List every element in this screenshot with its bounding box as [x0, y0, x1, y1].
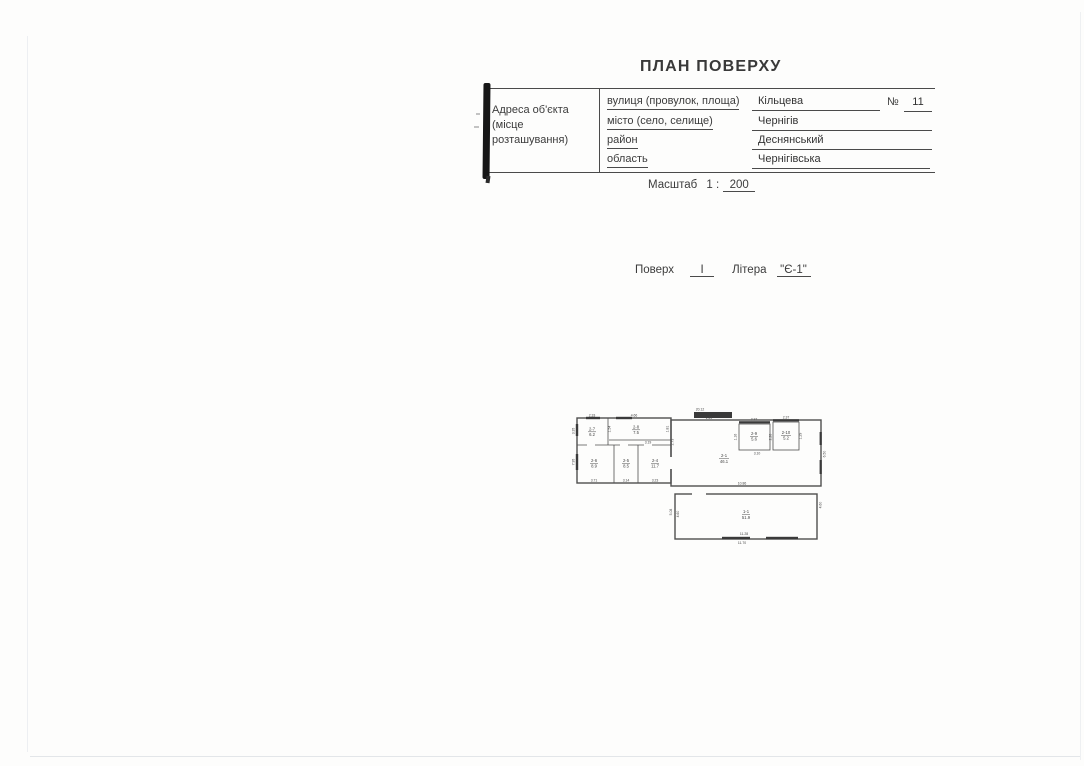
dim-label: 3.19 [645, 441, 652, 445]
window-mark [766, 537, 798, 539]
room-area: 8.9 [591, 464, 597, 469]
room-number: 2-9 [751, 431, 758, 436]
dimension-labels: 2.33 3.35 4.66 1.54 1.81 3.19 7.95 3.71 … [572, 408, 827, 546]
floor-value: I [690, 264, 714, 277]
window-mark [576, 424, 578, 436]
dim-label: 1.16 [734, 434, 738, 441]
chimney-mark [694, 412, 732, 418]
house-number-value: 11 [904, 96, 932, 112]
scale-ratio-value: 200 [723, 179, 755, 192]
dim-label: 5.08 [669, 509, 673, 516]
page-edge-bottom [30, 756, 1080, 757]
field-value-street: Кільцева [752, 95, 880, 111]
page-edge-right [1080, 12, 1081, 760]
field-label-city: місто (село, селище) [607, 115, 713, 130]
address-table: Адреса об'єкта (місце розташування) вули… [487, 88, 935, 173]
room-number: 2-7 [589, 427, 596, 432]
room-number: 1-1 [743, 509, 750, 514]
dim-label: 2.26 [769, 434, 773, 441]
house-number-label: № [887, 96, 899, 108]
address-label-line2: (місце розташування) [492, 118, 599, 148]
window-mark [616, 417, 632, 419]
room-label-1-1: 1-1 51.9 [742, 509, 751, 520]
room-number: 2-10 [782, 430, 791, 435]
field-value-city: Чернігів [752, 115, 932, 131]
dim-label: 20.12 [696, 408, 705, 412]
letter-value: "Є-1" [777, 264, 811, 277]
field-value-region: Чернігівська [752, 153, 930, 169]
room-label-2-10: 2-10 5.2 [781, 430, 791, 441]
dim-label: 2.73 [671, 439, 675, 446]
dim-label: 6.50 [823, 451, 827, 458]
dim-label: 3.71 [591, 479, 598, 483]
room-label-2-4: 2-4 11.7 [651, 458, 660, 469]
room-label-2-5: 2-5 8.5 [622, 458, 630, 469]
dim-label: 10.86 [738, 482, 747, 486]
dim-label: 1.81 [666, 426, 670, 433]
address-label-line1: Адреса об'єкта [492, 103, 599, 118]
page-title: ПЛАН ПОВЕРХУ [640, 58, 782, 76]
dim-label: 2.37 [751, 417, 758, 421]
dim-label: 7.95 [572, 459, 576, 466]
scan-speck [476, 113, 480, 115]
window-mark [722, 537, 750, 539]
floor-letter-line: ПоверхIЛітера"Є-1" [635, 264, 811, 277]
room-area: 11.7 [651, 464, 660, 469]
dim-label: 2.33 [589, 414, 596, 418]
letter-label: Літера [732, 264, 766, 276]
scanned-page: ПЛАН ПОВЕРХУ Адреса об'єкта (місце розта… [0, 0, 1084, 766]
scale-line: Масштаб 1 :200 [648, 179, 755, 192]
room-number: 2-4 [652, 458, 659, 463]
window-mark [820, 460, 822, 474]
room-number: 2-8 [633, 425, 640, 430]
page-edge-left [27, 36, 28, 752]
dim-label: 2.49 [706, 416, 713, 420]
dim-label: 3.10 [754, 452, 761, 456]
room-area: 5.2 [783, 436, 789, 441]
dim-label: 3.23 [652, 479, 659, 483]
field-label-street: вулиця (провулок, площа) [607, 95, 739, 110]
scan-artifact-bar-tail [486, 176, 491, 183]
room-labels: 2-7 6.2 2-8 7.5 2-6 8.9 2-5 8.5 [588, 425, 791, 520]
field-value-district: Деснянський [752, 134, 932, 150]
field-label-district: район [607, 134, 638, 149]
floor-label: Поверх [635, 264, 674, 276]
window-mark [739, 421, 770, 423]
dim-label: 1.29 [799, 433, 803, 440]
scan-artifact-bar [482, 83, 490, 179]
room-label-2-8: 2-8 7.5 [632, 425, 640, 436]
scale-ratio-prefix: 1 : [706, 179, 719, 191]
dim-label: 3.14 [623, 479, 630, 483]
dim-label: 4.66 [631, 414, 638, 418]
wall-main-room [671, 420, 821, 486]
field-label-region: область [607, 153, 648, 168]
room-area: 6.2 [589, 432, 595, 437]
room-area: 5.6 [751, 437, 757, 442]
dim-label: 1.54 [608, 426, 612, 433]
room-number: 2-6 [591, 458, 598, 463]
scale-label: Масштаб [648, 179, 697, 191]
address-label-cell: Адреса об'єкта (місце розташування) [487, 89, 600, 173]
floor-plan: 2-7 6.2 2-8 7.5 2-6 8.9 2-5 8.5 [572, 402, 834, 555]
room-number: 2-5 [623, 458, 630, 463]
room-area: 51.9 [742, 515, 751, 520]
dim-label: 11.28 [740, 532, 748, 536]
room-label-2-7: 2-7 6.2 [588, 427, 596, 438]
room-label-2-6: 2-6 8.9 [590, 458, 598, 469]
dim-label: 11.70 [738, 541, 746, 545]
room-area: 8.5 [623, 464, 629, 469]
dim-label: 4.60 [819, 502, 823, 509]
room-label-2-1: 2-1 46.1 [719, 453, 729, 464]
floor-plan-drawing: 2-7 6.2 2-8 7.5 2-6 8.9 2-5 8.5 [572, 402, 834, 550]
scan-speck [474, 126, 479, 128]
room-area: 7.5 [633, 430, 639, 435]
dim-label: 3.35 [572, 428, 576, 435]
window-mark [576, 454, 578, 470]
room-number: 2-1 [721, 453, 728, 458]
room-label-2-9: 2-9 5.6 [750, 431, 758, 442]
window-mark [820, 432, 822, 445]
window-mark [773, 419, 799, 421]
dim-label: 2.37 [783, 415, 790, 419]
dim-label: 4.60 [676, 511, 680, 518]
room-area: 46.1 [720, 459, 729, 464]
